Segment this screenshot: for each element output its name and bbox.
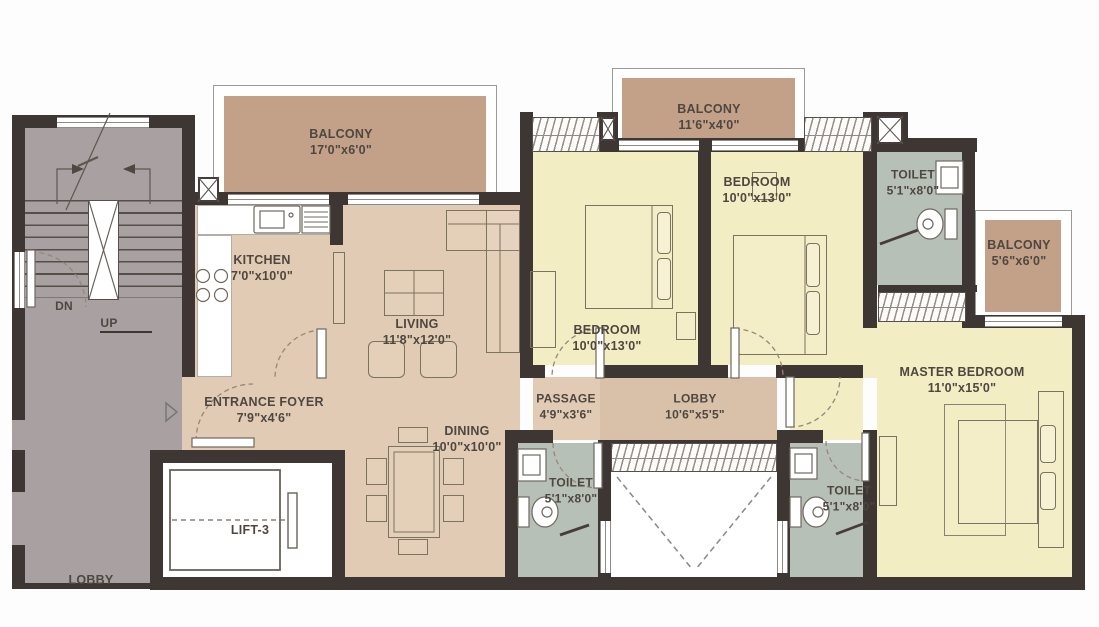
window-kitchen: [228, 194, 329, 205]
hatch-window-bedroom2: [804, 117, 872, 152]
wall: [505, 430, 553, 443]
wall: [863, 152, 877, 328]
room-label-master-bedroom: MASTER BEDROOM 11'0"x15'0": [899, 364, 1024, 397]
wardrobe-master: [879, 436, 897, 506]
pillow: [657, 258, 671, 300]
duct-toilet-top: [877, 116, 903, 144]
lift2-jamb-left: [600, 521, 611, 573]
wall: [150, 450, 345, 463]
pillow: [657, 212, 671, 254]
tv-console: [333, 252, 345, 324]
foyer-opening-floor: [182, 377, 195, 450]
room-label-kitchen: KITCHEN 7'0"x10'0": [231, 252, 293, 285]
wall: [150, 463, 163, 590]
sliding-door-living-balcony: [348, 194, 479, 205]
room-label-lobby: LOBBY 10'6"x5'5": [665, 391, 725, 422]
pillow: [806, 291, 820, 335]
room-label-toilet-right: TOILET 5'1"x8'0": [823, 483, 876, 514]
dining-chair: [398, 539, 428, 555]
floor-plan: BALCONY 17'0"x6'0" BALCONY 11'6"x4'0" BA…: [0, 0, 1099, 627]
room-label-entrance-foyer: ENTRANCE FOYER 7'9"x4'6": [204, 394, 323, 427]
room-label-balcony-top-middle: BALCONY 11'6"x4'0": [677, 101, 741, 134]
coffee-table: [384, 270, 444, 316]
pillow: [1040, 472, 1056, 510]
wall: [878, 285, 977, 292]
sofa-right: [486, 210, 520, 353]
hatch-window-bedroom1: [532, 117, 600, 152]
dining-chair: [443, 458, 464, 485]
wall: [150, 577, 1085, 590]
headboard-master: [1038, 391, 1064, 548]
kitchen-counter-top: [197, 205, 330, 235]
lift3-floor: [163, 463, 332, 577]
duct-kitchen: [198, 177, 219, 202]
dining-chair: [398, 427, 428, 443]
wall: [182, 115, 195, 377]
wall: [330, 205, 343, 245]
wall: [12, 450, 25, 492]
lift2-jamb-right: [777, 521, 788, 573]
room-label-lift3: LIFT-3: [231, 522, 269, 538]
dining-chair: [443, 495, 464, 522]
room-label-toilet-mid: TOILET 5'1"x8'0": [545, 475, 598, 506]
kitchen-counter-left: [197, 235, 232, 377]
dining-chair: [366, 495, 387, 522]
sliding-door-bedroom2-balcony: [712, 140, 798, 151]
sliding-door-bedroom1-balcony: [619, 140, 699, 151]
room-label-bedroom-1: BEDROOM 10'0"x13'0": [572, 322, 641, 355]
room-label-balcony-right: BALCONY 5'6"x6'0": [987, 237, 1051, 270]
toilet-mid-floor: [518, 443, 598, 577]
wall: [698, 152, 711, 365]
wall: [505, 430, 518, 590]
wall: [332, 463, 345, 590]
pillow: [806, 243, 820, 287]
door-master-balcony: [985, 316, 1062, 327]
nightstand-bedroom1: [676, 312, 696, 340]
wall: [12, 545, 25, 588]
window-stairwell: [57, 117, 149, 128]
room-label-toilet-top: TOILET 5'1"x8'0": [887, 167, 940, 198]
wall: [600, 365, 728, 378]
lift2-floor: [611, 472, 777, 577]
master-bedroom-floor-gap: [863, 328, 877, 378]
dresser-bedroom1: [530, 271, 556, 348]
stair-label-up: UP: [100, 316, 117, 332]
hatch-lift2-shaft: [611, 443, 777, 472]
wall: [1072, 315, 1085, 590]
stair-flight-right: [119, 200, 182, 298]
room-label-bedroom-2: BEDROOM 10'0"x13'0": [722, 174, 791, 207]
dining-chair: [366, 458, 387, 485]
hatch-wardrobe-master: [878, 292, 966, 322]
dining-table: [388, 446, 440, 538]
room-label-passage: PASSAGE 4'9"x3'6": [536, 391, 596, 422]
room-label-ground-lobby: LOBBY: [69, 572, 114, 588]
window-stair-left-wall: [14, 252, 25, 308]
wall: [776, 365, 863, 378]
room-label-balcony-top-left: BALCONY 17'0"x6'0": [309, 126, 373, 159]
pillow: [1040, 425, 1056, 463]
stair-label-dn: DN: [55, 299, 73, 315]
bed-master: [958, 420, 1038, 524]
room-label-living: LIVING 11'8"x12'0": [383, 316, 452, 349]
wall: [777, 430, 823, 443]
wall: [520, 365, 545, 378]
duct-bedroom1: [601, 117, 615, 141]
room-label-dining: DINING 10'0"x10'0": [432, 423, 501, 456]
stair-center-column: [88, 200, 119, 300]
stair-flight-left: [25, 200, 88, 298]
